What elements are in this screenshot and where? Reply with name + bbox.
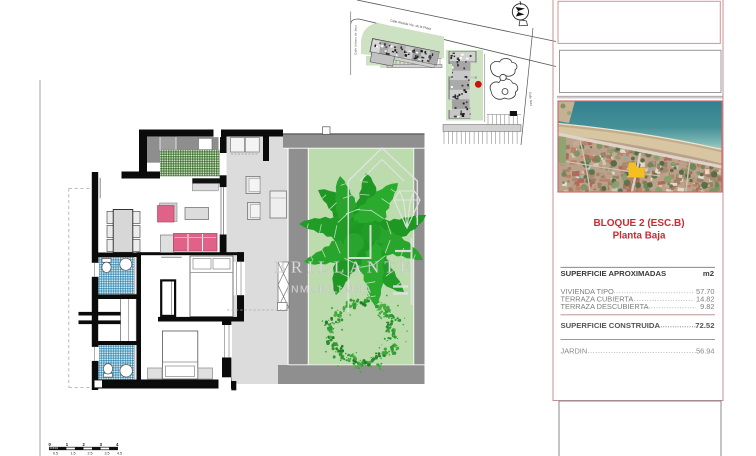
svg-text:3.5: 3.5 — [105, 452, 110, 456]
svg-text:4.5: 4.5 — [117, 452, 122, 456]
svg-text:m2: m2 — [703, 269, 714, 278]
svg-text:BRILLANTE: BRILLANTE — [274, 258, 415, 277]
svg-text:SUPERFICIE CONSTRUIDA: SUPERFICIE CONSTRUIDA — [561, 321, 661, 330]
svg-text:56.94: 56.94 — [696, 347, 715, 356]
svg-text:SUPERFICIE APROXIMADAS: SUPERFICIE APROXIMADAS — [561, 269, 667, 278]
svg-text:Planta Baja: Planta Baja — [613, 231, 666, 242]
svg-text:1.5: 1.5 — [71, 452, 76, 456]
svg-text:0.5: 0.5 — [53, 452, 58, 456]
svg-text:Calle Urbano de Jaca: Calle Urbano de Jaca — [354, 25, 358, 55]
svg-text:TERRAZA DESCUBIERTA: TERRAZA DESCUBIERTA — [561, 302, 649, 311]
svg-text:BLOQUE 2 (ESC.B): BLOQUE 2 (ESC.B) — [593, 218, 684, 229]
svg-text:9.82: 9.82 — [700, 302, 714, 311]
svg-text:JARDIN: JARDIN — [561, 347, 588, 356]
svg-text:72.52: 72.52 — [695, 321, 714, 330]
svg-text:2.5: 2.5 — [88, 452, 93, 456]
svg-text:INMOBILIARIA: INMOBILIARIA — [287, 285, 372, 296]
